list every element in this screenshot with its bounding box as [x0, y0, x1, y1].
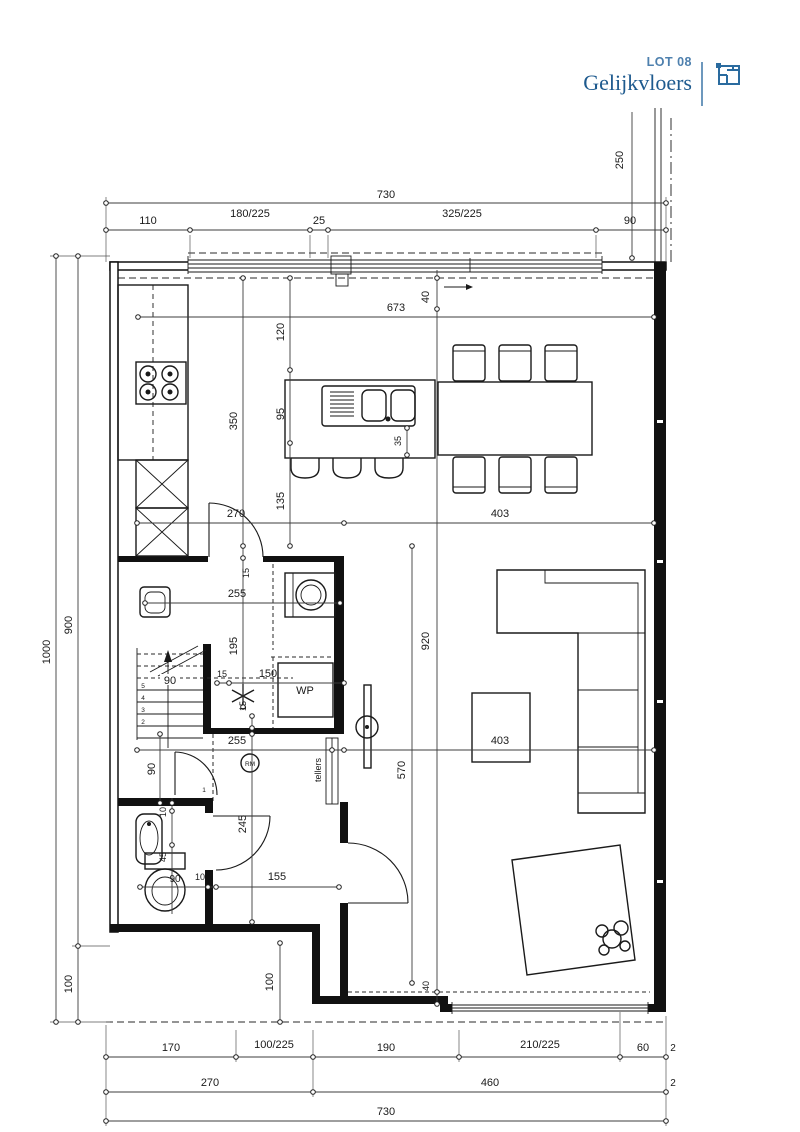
- dim-40-bottom: 40: [421, 981, 431, 991]
- cooktop: [136, 362, 186, 404]
- chair: [499, 457, 531, 493]
- dim-right-250: 250: [614, 151, 626, 169]
- dim-403-a: 403: [491, 508, 509, 520]
- slide-arrow: [466, 284, 473, 290]
- bar-stool: [291, 458, 319, 478]
- dim-15-b: 15: [217, 669, 227, 679]
- dim-b1-e: 60: [637, 1042, 649, 1054]
- door-front: [348, 843, 408, 903]
- bar-stool: [375, 458, 403, 478]
- dim-b2-b: 460: [481, 1077, 499, 1089]
- dim-top-a: 110: [139, 215, 157, 227]
- sofa: [497, 570, 645, 813]
- dim-95: 95: [275, 408, 287, 420]
- rug: [512, 845, 635, 975]
- plant: [596, 921, 630, 955]
- dim-b1-b: 100/225: [254, 1039, 294, 1051]
- faucet: [386, 417, 391, 422]
- wall-step: [312, 924, 320, 1004]
- chair: [453, 345, 485, 381]
- wall-porch: [312, 996, 448, 1004]
- sink-basin: [362, 390, 386, 421]
- dim-b2-c: 2: [670, 1078, 676, 1089]
- dim-b1-f: 2: [670, 1043, 676, 1054]
- dim-255-a: 255: [228, 588, 246, 600]
- side-table: [472, 693, 530, 762]
- dim-left-900: 900: [63, 616, 75, 634]
- chair: [453, 457, 485, 493]
- dim-left-1000: 1000: [41, 640, 53, 664]
- dashed-lines: [106, 108, 671, 1022]
- dim-top-c: 25: [313, 215, 325, 227]
- stair-step-1: 1: [202, 787, 206, 794]
- dim-top-d: 325/225: [442, 208, 482, 220]
- dim-195: 195: [228, 637, 240, 655]
- dim-120: 120: [275, 323, 287, 341]
- dim-10-a: 10: [158, 807, 168, 817]
- dim-b1-c: 190: [377, 1042, 395, 1054]
- dim-135: 135: [275, 492, 287, 510]
- dim-b2-a: 270: [201, 1077, 219, 1089]
- dim-270: 270: [227, 508, 245, 520]
- dim-top-b: 180/225: [230, 208, 270, 220]
- dim-350: 350: [228, 412, 240, 430]
- smoke-detector-label: RM: [245, 761, 255, 768]
- dimension-texts: 730 110 180/225 25 325/225 90 250 1000 9…: [41, 151, 676, 1118]
- stair-step-5: 5: [141, 683, 145, 690]
- door-hall: [175, 752, 217, 795]
- dim-570: 570: [396, 761, 408, 779]
- chair: [545, 345, 577, 381]
- dim-top-total: 730: [377, 189, 395, 201]
- dim-40-top: 40: [420, 291, 432, 303]
- dim-150: 150: [259, 668, 277, 680]
- wall-left: [110, 262, 118, 932]
- dim-90-wc: 90: [169, 874, 181, 885]
- dim-673: 673: [387, 302, 405, 314]
- dimension-ticks: [54, 201, 669, 1124]
- dim-15-c: 15: [238, 701, 248, 711]
- dim-245: 245: [237, 815, 249, 833]
- floor-plan-page: LOT 08 Gelijkvloers: [0, 0, 800, 1132]
- stair-step-4: 4: [141, 695, 145, 702]
- dining-area: [438, 345, 592, 493]
- dim-left-100: 100: [63, 975, 75, 993]
- dim-90-hall: 90: [146, 763, 158, 775]
- windows: [188, 256, 648, 1014]
- dim-100: 100: [264, 973, 276, 991]
- heat-pump-label: WP: [296, 685, 314, 697]
- stair-step-3: 3: [141, 707, 145, 714]
- wall-right: [654, 262, 666, 1012]
- dim-15-a: 15: [241, 568, 251, 578]
- floor-plan-drawing: 730 110 180/225 25 325/225 90 250 1000 9…: [0, 0, 800, 1132]
- dim-b1-d: 210/225: [520, 1039, 560, 1051]
- dim-255-b: 255: [228, 735, 246, 747]
- dim-45: 45: [158, 852, 168, 862]
- dim-403-b: 403: [491, 735, 509, 747]
- dim-top-e: 90: [624, 215, 636, 227]
- dim-b3-total: 730: [377, 1106, 395, 1118]
- chair: [499, 345, 531, 381]
- chair: [545, 457, 577, 493]
- dimension-lines: [50, 197, 668, 1126]
- wall-bottom-left: [110, 924, 320, 932]
- sink-basin: [391, 390, 415, 421]
- meters-label: tellers: [313, 758, 323, 783]
- dim-b1-a: 170: [162, 1042, 180, 1054]
- dim-920: 920: [420, 632, 432, 650]
- dim-10-b: 10: [195, 872, 205, 882]
- dining-table: [438, 382, 592, 455]
- dim-155: 155: [268, 871, 286, 883]
- walls: [110, 262, 666, 1012]
- dim-90-stairs: 90: [164, 675, 176, 687]
- bar-stool: [333, 458, 361, 478]
- stair-step-2: 2: [141, 719, 145, 726]
- dim-35: 35: [393, 436, 403, 446]
